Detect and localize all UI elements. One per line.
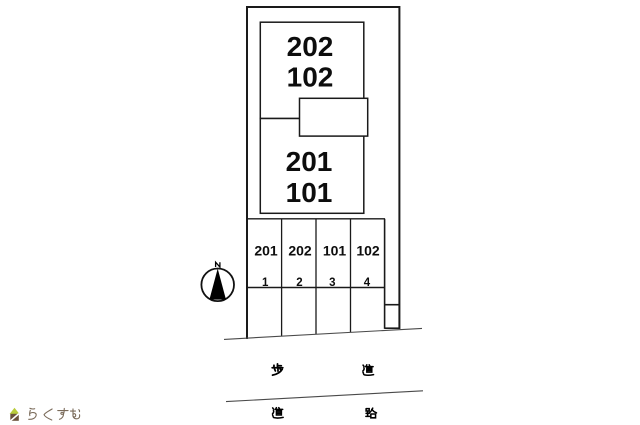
svg-text:2: 2 <box>296 277 302 289</box>
svg-text:101: 101 <box>323 242 347 258</box>
svg-text:4: 4 <box>364 277 371 289</box>
svg-text:102: 102 <box>356 242 380 258</box>
svg-text:202: 202 <box>288 242 312 258</box>
svg-text:201: 201 <box>286 146 333 177</box>
svg-text:101: 101 <box>286 177 333 208</box>
svg-text:3: 3 <box>329 277 335 289</box>
svg-text:1: 1 <box>262 277 269 289</box>
svg-text:202: 202 <box>287 31 334 62</box>
svg-text:102: 102 <box>287 62 334 93</box>
svg-text:201: 201 <box>254 242 278 258</box>
